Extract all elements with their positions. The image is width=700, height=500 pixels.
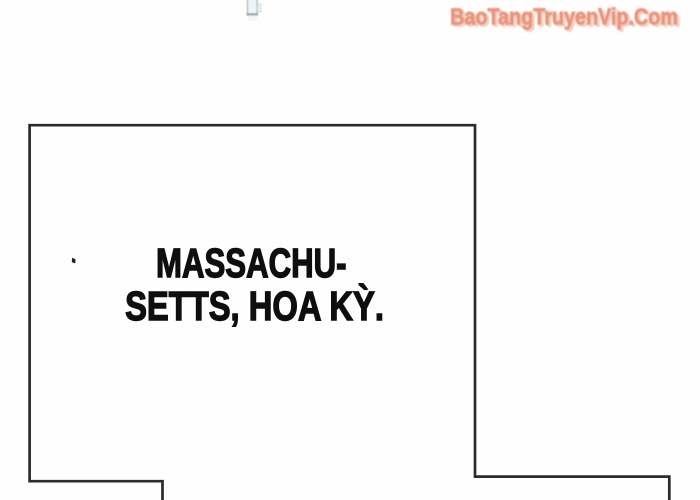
svg-text:BaoTangTruyenVip.Com: BaoTangTruyenVip.Com <box>450 4 678 30</box>
svg-text:MASSACHU-: MASSACHU- <box>156 240 346 286</box>
svg-text:SETTS, HOA KỲ.: SETTS, HOA KỲ. <box>125 284 384 329</box>
